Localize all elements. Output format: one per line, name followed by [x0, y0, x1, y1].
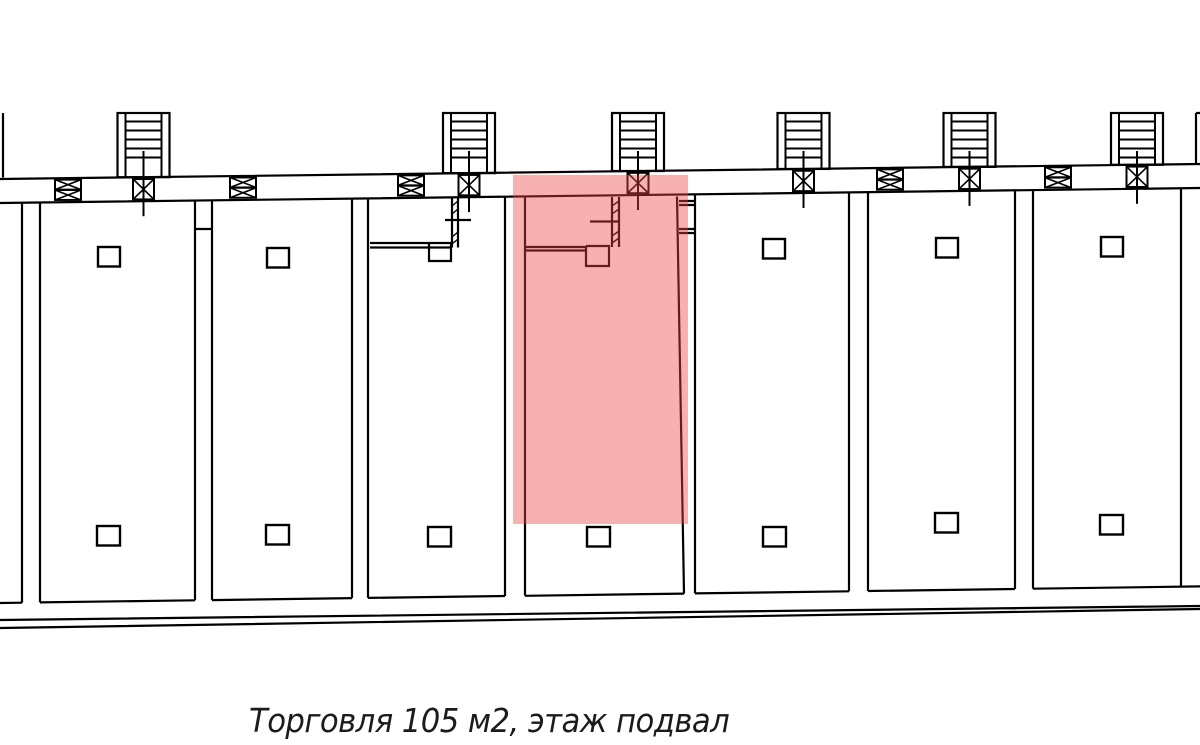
highlighted-unit-overlay[interactable] [513, 175, 688, 524]
floor-plan-canvas: Торговля 105 м2, этаж подвал [0, 0, 1200, 745]
wall-hatch-pair-top-cross [55, 180, 81, 190]
wall-hatch-pair-top-cross [230, 177, 256, 187]
wall-hatch-pair-bottom-cross [398, 186, 424, 196]
caption-text: Торговля 105 м2, этаж подвал [249, 701, 729, 740]
unit-bottom-walls [0, 586, 1200, 603]
column-marker [1101, 237, 1123, 257]
wall-hatch-pair-bottom-cross [55, 190, 81, 200]
wall-hatch-pair-bottom-cross [877, 180, 903, 190]
column-marker [936, 238, 958, 258]
column-marker [1100, 515, 1123, 535]
wall-hatch-pair-bottom-cross [1045, 178, 1071, 188]
wall-hatch-pair-top-cross [1045, 167, 1071, 177]
column-marker [98, 247, 120, 267]
column-marker [266, 525, 289, 545]
column-marker [763, 527, 786, 547]
wall-hatch-pair-top-cross [398, 175, 424, 185]
unit3-partitions [370, 198, 471, 261]
edge-cut-staircases [3, 113, 1200, 178]
wall-hatch-pair-bottom-cross [230, 188, 256, 198]
column-marker [587, 527, 610, 547]
column-marker [97, 526, 120, 546]
column-marker [763, 239, 785, 259]
sidewalk-lines [0, 606, 1200, 628]
floor-plan-svg [0, 0, 1200, 745]
column-marker [267, 248, 289, 268]
column-marker [428, 527, 451, 547]
wall-hatch-pair-top-cross [877, 169, 903, 179]
column-marker [935, 513, 958, 533]
caption: Торговля 105 м2, этаж подвал [249, 701, 729, 740]
